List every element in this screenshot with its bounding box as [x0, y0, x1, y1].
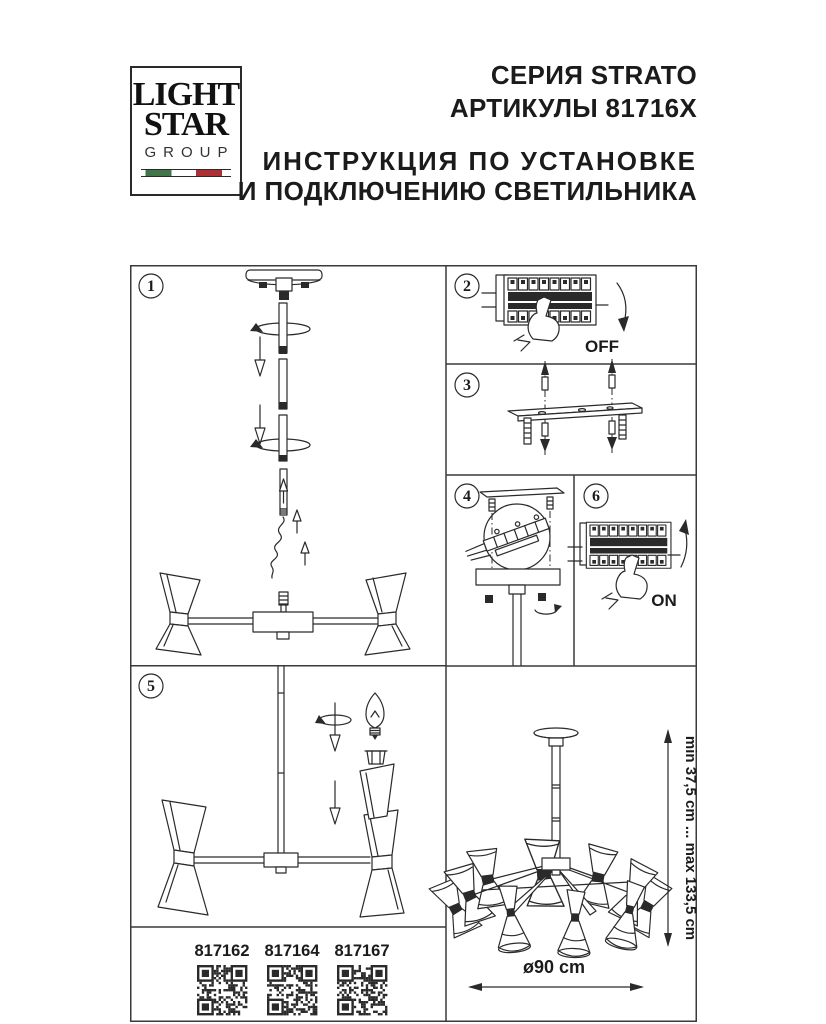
step2-power-off-diagram: OFF — [482, 275, 629, 356]
step3-badge: 3 — [455, 373, 479, 397]
diameter-label: ø90 cm — [523, 957, 585, 977]
center-hub — [264, 853, 298, 867]
height-dimension: min 37,5 cm ... max 133,5 cm — [664, 729, 697, 947]
articles-title: АРТИКУЛЫ 81716X — [238, 92, 697, 125]
bowtie-shade — [365, 573, 410, 655]
on-label: ON — [651, 591, 677, 610]
qr-code — [197, 965, 247, 1015]
canopy-plate — [476, 569, 560, 585]
step6-number: 6 — [592, 488, 600, 505]
height-range-label: min 37,5 cm ... max 133,5 cm — [682, 736, 697, 940]
diameter-dimension: ø90 cm — [468, 957, 644, 991]
italian-flag-bar — [141, 169, 231, 177]
step5-number: 5 — [147, 678, 155, 695]
qr-code — [267, 965, 317, 1015]
step1-rod-assembly-diagram — [156, 270, 410, 655]
step6-badge: 6 — [584, 484, 608, 508]
wall-anchor — [524, 418, 531, 444]
socket-ring — [365, 751, 387, 764]
installation-steps-diagram: 1 2 3 4 6 5 — [130, 265, 697, 1022]
ceiling-bracket — [480, 488, 564, 497]
bowtie-shade — [156, 573, 201, 655]
candle-bulb-icon — [366, 693, 384, 740]
logo-word-group: GROUP — [132, 144, 240, 161]
logo-word-star: STAR — [132, 110, 240, 140]
article-number: 817167 — [334, 942, 389, 960]
terminal-block — [462, 512, 551, 565]
series-title: СЕРИЯ STRATO — [238, 59, 697, 92]
power-cable — [271, 517, 284, 578]
article-number: 817162 — [194, 942, 249, 960]
rotate-arrow-icon — [535, 608, 557, 614]
step3-number: 3 — [463, 377, 471, 394]
step2-badge: 2 — [455, 274, 479, 298]
article-number: 817164 — [264, 942, 320, 960]
center-hub — [253, 612, 313, 632]
qr-code — [337, 965, 387, 1015]
step3-mounting-bracket-diagram — [508, 359, 642, 455]
header-titles: СЕРИЯ STRATO АРТИКУЛЫ 81716X ИНСТРУКЦИЯ … — [238, 59, 697, 206]
step4-number: 4 — [463, 488, 471, 505]
step4-badge: 4 — [455, 484, 479, 508]
instruction-title-line1: ИНСТРУКЦИЯ ПО УСТАНОВКЕ — [238, 146, 697, 176]
step5-shade-bulb-diagram — [158, 666, 404, 917]
instruction-title-line2: И ПОДКЛЮЧЕНИЮ СВЕТИЛЬНИКА — [238, 176, 697, 206]
curved-arrow-down-icon — [617, 283, 626, 323]
step1-badge: 1 — [139, 274, 163, 298]
curved-arrow-up-icon — [681, 529, 687, 567]
off-label: OFF — [585, 337, 619, 356]
lightstar-logo: LIGHT STAR GROUP — [130, 66, 242, 196]
step6-power-on-diagram: ON — [568, 519, 689, 610]
chandelier-dimensions-diagram: min 37,5 cm ... max 133,5 cm ø90 cm — [428, 728, 697, 991]
step5-badge: 5 — [139, 674, 163, 698]
article-qr-panel: 817162 817164 817167 — [194, 942, 389, 1015]
step1-number: 1 — [147, 278, 155, 295]
step4-wiring-diagram — [462, 488, 564, 665]
center-hub — [542, 858, 570, 870]
step2-number: 2 — [463, 278, 471, 295]
